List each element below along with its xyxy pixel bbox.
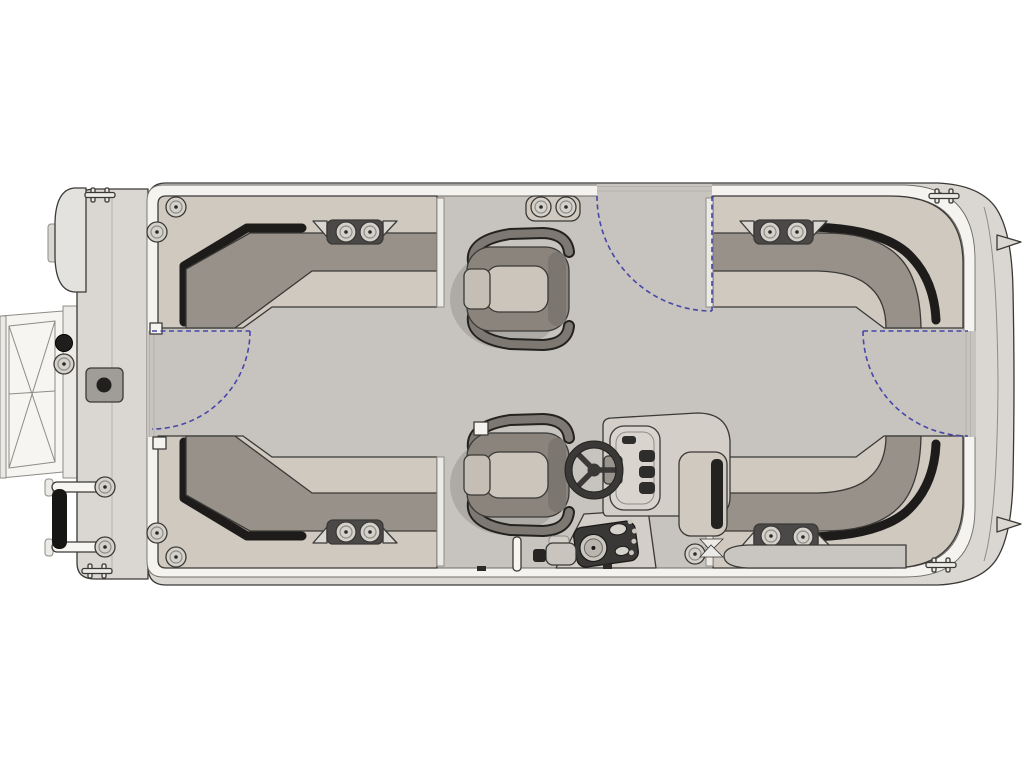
ramp-outer-edge [0, 316, 6, 478]
deck-screw [166, 547, 186, 567]
speaker [761, 526, 781, 546]
gate-hinge-block [153, 437, 166, 449]
speaker [360, 222, 380, 242]
armrest-pad [711, 459, 723, 529]
deck-screw [166, 197, 186, 217]
ladder-grab-handle [52, 489, 67, 549]
cleat-washer [531, 197, 551, 217]
deck-screw [147, 523, 167, 543]
lounge-end-face [437, 457, 444, 566]
gate-hinge-block [150, 323, 162, 334]
speaker [336, 522, 356, 542]
ramp-latch-bolt [56, 335, 73, 352]
lounge-end-face [437, 198, 444, 307]
boarding-ramp [0, 306, 78, 478]
ramp-hinge-washer [54, 354, 74, 374]
console-vent [622, 436, 636, 444]
throttle-base [546, 543, 576, 565]
speaker [760, 222, 780, 242]
drain-fitting [603, 564, 612, 569]
ladder-washer [95, 477, 115, 497]
aft-lounge-tongue [724, 545, 906, 568]
ramp-mount-rail [63, 306, 78, 478]
deck-screw [147, 222, 167, 242]
motor-pod-body [55, 188, 86, 292]
throttle-lever [533, 549, 546, 562]
console-vent [639, 482, 655, 494]
speaker [793, 527, 813, 547]
access-pad-button [97, 378, 112, 393]
mooring-cleat-pod [526, 196, 580, 221]
speaker [336, 222, 356, 242]
floorplan-svg [0, 0, 1024, 768]
table-post [513, 537, 521, 571]
speaker [787, 222, 807, 242]
pontoon-floorplan [0, 0, 1024, 768]
cleat-washer [556, 197, 576, 217]
ladder-washer [95, 537, 115, 557]
console-vent [639, 466, 655, 478]
left-gate-opening [147, 331, 159, 437]
cup-holder [685, 544, 705, 564]
deck-fitting-plate [474, 422, 488, 435]
access-pad [86, 368, 123, 402]
bow-gate-opening [963, 331, 976, 437]
speaker [360, 522, 380, 542]
motor-pod [48, 188, 86, 292]
top-gate-opening [597, 184, 712, 197]
console-vent [639, 450, 655, 462]
drain-fitting [477, 566, 486, 571]
